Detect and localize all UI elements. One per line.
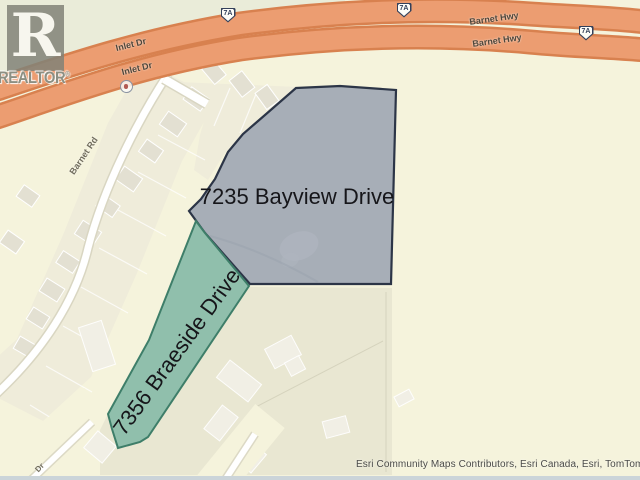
water-strip-bottom <box>0 476 640 480</box>
map-attribution: Esri Community Maps Contributors, Esri C… <box>356 459 640 470</box>
listing-map: Inlet DrInlet DrBarnet HwyBarnet HwyBarn… <box>0 0 640 480</box>
route-shield-label: 7A <box>397 5 412 12</box>
building-footprint <box>394 389 414 407</box>
route-shield-label: 7A <box>579 28 594 35</box>
realtor-brand-text: REALTOR® <box>0 69 69 88</box>
label-bayview: 7235 Bayview Drive <box>200 186 394 208</box>
realtor-logo-square: R <box>7 5 64 71</box>
route-shield-label: 7A <box>221 10 236 17</box>
mls-emblem-icon <box>120 80 133 93</box>
building-footprint <box>16 185 40 207</box>
registered-mark: ® <box>65 72 69 79</box>
realtor-logo-letter: R <box>11 6 61 66</box>
building-footprint <box>0 230 24 254</box>
map-canvas[interactable] <box>0 0 640 480</box>
